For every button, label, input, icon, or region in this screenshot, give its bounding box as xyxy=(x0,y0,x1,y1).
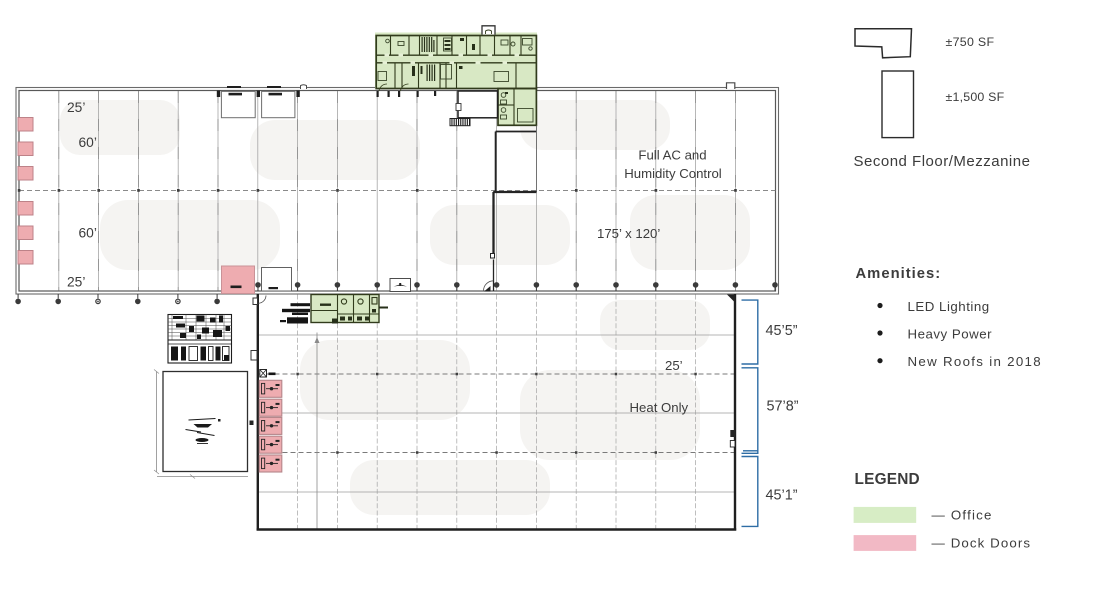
svg-text:Second Floor/Mezzanine: Second Floor/Mezzanine xyxy=(854,153,1031,170)
svg-text:45’1”: 45’1” xyxy=(766,487,798,503)
svg-text:Amenities:: Amenities: xyxy=(856,266,942,282)
svg-text:Humidity Control: Humidity Control xyxy=(624,166,722,181)
svg-text:45’5”: 45’5” xyxy=(766,323,798,339)
svg-text:60’: 60’ xyxy=(79,226,97,241)
svg-text:60’: 60’ xyxy=(79,135,97,150)
svg-text:— Dock Doors: — Dock Doors xyxy=(932,536,1032,551)
svg-text:25’: 25’ xyxy=(67,275,85,290)
svg-text:175’ x 120’: 175’ x 120’ xyxy=(597,226,660,241)
svg-text:±1,500 SF: ±1,500 SF xyxy=(946,90,1005,104)
svg-text:Heat Only: Heat Only xyxy=(630,400,689,415)
svg-text:LED Lighting: LED Lighting xyxy=(908,299,990,314)
svg-text:New Roofs in 2018: New Roofs in 2018 xyxy=(908,354,1042,369)
svg-text:25’: 25’ xyxy=(67,100,85,115)
svg-text:±750 SF: ±750 SF xyxy=(946,35,995,49)
svg-text:Heavy Power: Heavy Power xyxy=(908,327,993,342)
svg-text:25’: 25’ xyxy=(665,358,683,373)
svg-text:— Office: — Office xyxy=(932,508,993,523)
svg-text:57’8”: 57’8” xyxy=(767,398,799,414)
svg-text:LEGEND: LEGEND xyxy=(855,471,920,488)
svg-text:Full AC and: Full AC and xyxy=(638,148,706,163)
